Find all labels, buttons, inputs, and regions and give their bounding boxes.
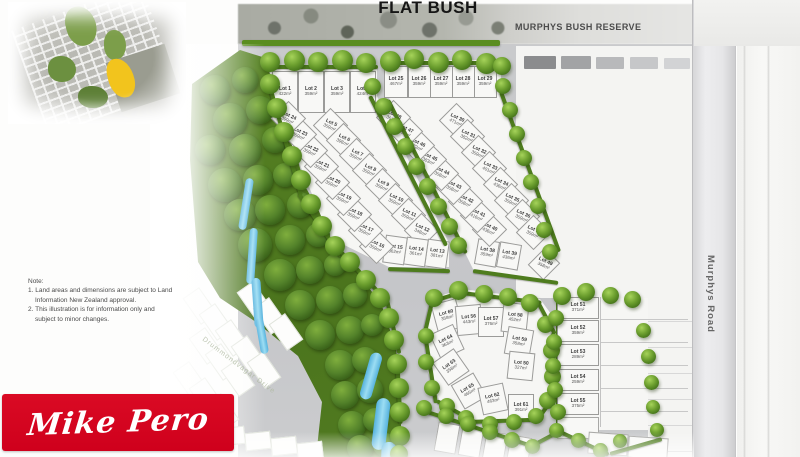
- lot-label: Lot 65465m²: [460, 383, 478, 399]
- tree-icon: [397, 138, 414, 155]
- faded-lot-cell: [270, 436, 298, 457]
- tree-icon: [424, 380, 440, 396]
- top-right-corner: [694, 0, 800, 46]
- tree-icon: [528, 408, 544, 424]
- tree-icon: [460, 416, 476, 432]
- tree-icon: [549, 423, 564, 438]
- tree-icon: [260, 74, 280, 94]
- lot-cell: Lot 62463m²: [477, 383, 508, 416]
- tree-icon: [438, 408, 454, 424]
- subdivision-plan: MURPHYS BUSH RESERVE Murphys Road FLAT B…: [0, 0, 800, 457]
- locator-aerial-map: [8, 2, 186, 124]
- tree-icon: [387, 354, 407, 374]
- tree-icon: [636, 323, 651, 338]
- tree-icon: [641, 349, 656, 364]
- tree-icon: [546, 334, 562, 350]
- vignette: [8, 2, 186, 124]
- reserve-label: MURPHYS BUSH RESERVE: [515, 22, 641, 32]
- tree-icon: [441, 218, 458, 235]
- tree-icon: [312, 216, 332, 236]
- lot-label: Lot 56443m²: [461, 314, 477, 325]
- lot-label: Lot 58452m²: [507, 312, 523, 323]
- lot-label: Lot 57376m²: [484, 317, 499, 327]
- lot-cell: Lot 2359m²: [298, 71, 324, 113]
- tree-icon: [390, 445, 408, 457]
- lot-label: Lot 63358m²: [442, 359, 460, 376]
- tree-icon: [571, 433, 586, 448]
- building-footprint: [664, 58, 690, 69]
- tree-icon: [548, 310, 564, 326]
- tree-icon: [380, 51, 401, 72]
- notes-line: Information New Zealand approval.: [28, 296, 243, 305]
- tree-icon: [644, 375, 659, 390]
- page-title: FLAT BUSH: [238, 0, 618, 18]
- tree-icon: [408, 158, 425, 175]
- tree-icon: [547, 382, 563, 398]
- building-footprint: [561, 56, 591, 69]
- tree-icon: [275, 225, 305, 255]
- notes-block: Note: 1. Land areas and dimensions are s…: [28, 277, 243, 324]
- tree-icon: [650, 423, 664, 437]
- tree-icon: [418, 328, 434, 344]
- lot-label: Lot 25467m²: [389, 77, 404, 87]
- tree-icon: [506, 414, 522, 430]
- tree-icon: [416, 400, 432, 416]
- faded-lot-cell: [244, 431, 272, 452]
- tree-icon: [553, 287, 571, 305]
- lot-label: Lot 62463m²: [485, 393, 501, 406]
- lot-label: Lot 12348m²: [412, 222, 430, 237]
- lot-label: Lot 51371m²: [571, 303, 586, 313]
- lot-label: Lot 53289m²: [571, 350, 586, 360]
- lot-label: Lot 1422m²: [279, 87, 292, 97]
- lot-label: Lot 60358m²: [439, 309, 456, 322]
- tree-icon: [305, 320, 335, 350]
- lot-cell: Lot 53289m²: [557, 344, 599, 366]
- tree-icon: [301, 194, 321, 214]
- tree-icon: [418, 354, 434, 370]
- tree-icon: [332, 50, 353, 71]
- building-footprint: [630, 57, 658, 69]
- lot-label: Lot 27359m²: [434, 77, 449, 87]
- tree-icon: [452, 50, 472, 70]
- tree-icon: [264, 259, 296, 291]
- tree-icon: [364, 78, 381, 95]
- lot-label: Lot 13381m²: [429, 248, 445, 260]
- tree-icon: [356, 53, 376, 73]
- tree-icon: [390, 402, 410, 422]
- tree-icon: [525, 439, 540, 454]
- lot-label: Lot 3359m²: [331, 87, 344, 97]
- tree-icon: [530, 198, 546, 214]
- tree-icon: [428, 52, 449, 73]
- tree-icon: [646, 400, 660, 414]
- tree-icon: [390, 426, 410, 446]
- lot-cell: Lot 3359m²: [324, 71, 350, 113]
- tree-icon: [521, 294, 539, 312]
- tree-icon: [550, 404, 566, 420]
- hedge-bar: [242, 40, 500, 46]
- tree-icon: [386, 118, 403, 135]
- tree-icon: [499, 288, 517, 306]
- tree-icon: [260, 52, 280, 72]
- tree-icon: [593, 443, 608, 457]
- tree-icon: [331, 381, 359, 409]
- tree-icon: [450, 237, 467, 254]
- right-margin: [737, 0, 800, 457]
- notes-line: 1. Land areas and dimensions are subject…: [28, 286, 243, 295]
- lot-cell: Lot 39436m²: [496, 241, 522, 270]
- lot-label: Lot 39436m²: [501, 250, 517, 262]
- lot-label: Lot 54259m²: [571, 375, 586, 385]
- lot-label: Lot 29359m²: [478, 77, 493, 87]
- tree-icon: [523, 174, 539, 190]
- notes-line: subject to minor changes.: [28, 315, 243, 324]
- boundary-line: [767, 0, 770, 457]
- faded-lot-cell: [296, 441, 324, 457]
- lot-label: Lot 55375m²: [571, 399, 586, 409]
- tree-icon: [577, 283, 595, 301]
- lot-label: Lot 28359m²: [456, 77, 471, 87]
- tree-icon: [347, 435, 373, 457]
- tree-icon: [229, 134, 261, 166]
- tree-icon: [542, 244, 558, 260]
- tree-icon: [255, 195, 285, 225]
- tree-icon: [200, 75, 230, 105]
- tree-icon: [340, 252, 360, 272]
- tree-icon: [602, 287, 619, 304]
- tree-icon: [308, 52, 328, 72]
- lot-cell: Lot 52359m²: [557, 320, 599, 342]
- tree-icon: [316, 286, 344, 314]
- tree-icon: [325, 236, 345, 256]
- tree-icon: [356, 270, 376, 290]
- boundary-line: [743, 0, 746, 457]
- lot-cell: Lot 26359m²: [408, 66, 431, 98]
- tree-icon: [232, 67, 258, 93]
- tree-icon: [536, 222, 552, 238]
- lot-cell: Lot 54259m²: [557, 369, 599, 391]
- tree-icon: [624, 291, 641, 308]
- tree-icon: [296, 256, 324, 284]
- tree-icon: [482, 424, 498, 440]
- tree-icon: [545, 358, 561, 374]
- lot-label: Lot 38359m²: [479, 247, 495, 259]
- tree-icon: [493, 57, 511, 75]
- mike-pero-logo: Mike Pero: [2, 394, 234, 451]
- lot-label: Lot 59358m²: [511, 336, 527, 348]
- tree-icon: [291, 170, 311, 190]
- tree-icon: [509, 126, 525, 142]
- murphys-road: Murphys Road: [692, 0, 736, 457]
- tree-icon: [516, 150, 532, 166]
- notes-line: 2. This illustration is for information …: [28, 305, 243, 314]
- tree-icon: [208, 168, 242, 202]
- tree-icon: [284, 50, 305, 71]
- tree-icon: [267, 98, 287, 118]
- tree-icon: [282, 146, 302, 166]
- tree-icon: [404, 49, 424, 69]
- lot-label: Lot 52359m²: [571, 326, 586, 336]
- tree-icon: [384, 330, 404, 350]
- lot-label: Lot 14361m²: [408, 246, 424, 258]
- tree-icon: [213, 103, 247, 137]
- lot-label: Lot 50327m²: [513, 360, 529, 371]
- tree-icon: [449, 281, 468, 300]
- tree-icon: [425, 289, 443, 307]
- notes-heading: Note:: [28, 277, 243, 286]
- tree-icon: [389, 378, 409, 398]
- tree-icon: [504, 432, 520, 448]
- tree-icon: [613, 434, 627, 448]
- lot-cell: Lot 57376m²: [478, 307, 504, 337]
- tree-icon: [419, 178, 436, 195]
- tree-icon: [336, 316, 364, 344]
- tree-icon: [379, 308, 399, 328]
- lot-label: Lot 26359m²: [412, 77, 427, 87]
- road-label: Murphys Road: [705, 255, 716, 333]
- tree-icon: [502, 102, 518, 118]
- tree-icon: [475, 285, 493, 303]
- building-footprint: [524, 56, 556, 69]
- lot-label: Lot 61391m²: [514, 403, 529, 413]
- tree-icon: [495, 78, 511, 94]
- lot-cell: Lot 50327m²: [507, 351, 536, 382]
- tree-icon: [274, 122, 294, 142]
- tree-icon: [285, 290, 315, 320]
- brand-name: Mike Pero: [25, 402, 210, 443]
- tree-icon: [325, 350, 355, 380]
- tree-icon: [195, 135, 225, 165]
- building-footprint: [596, 57, 624, 69]
- lot-label: Lot 2359m²: [305, 87, 318, 97]
- tree-icon: [370, 288, 390, 308]
- lot-cell: Lot 28359m²: [452, 66, 475, 98]
- tree-icon: [430, 198, 447, 215]
- tree-icon: [375, 98, 392, 115]
